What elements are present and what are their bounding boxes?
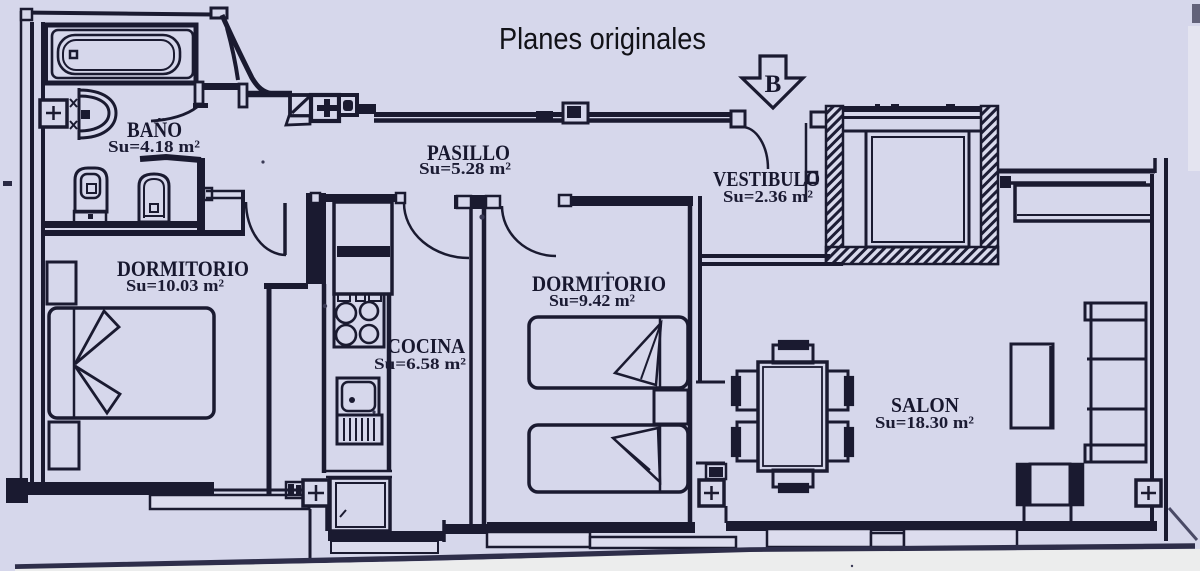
svg-text:Su=5.28 m²: Su=5.28 m² (419, 159, 511, 178)
svg-text:B: B (765, 71, 782, 98)
svg-text:Su=18.30 m²: Su=18.30 m² (875, 413, 974, 432)
svg-text:Su=4.18 m²: Su=4.18 m² (108, 137, 200, 156)
svg-text:COCINA: COCINA (387, 334, 466, 358)
svg-text:Su=6.58 m²: Su=6.58 m² (374, 356, 466, 373)
svg-text:Su=9.42 m²: Su=9.42 m² (549, 291, 635, 310)
svg-text:Planes originales: Planes originales (499, 21, 706, 56)
svg-text:Su=10.03 m²: Su=10.03 m² (126, 276, 224, 295)
svg-text:Su=2.36 m²: Su=2.36 m² (723, 187, 813, 206)
